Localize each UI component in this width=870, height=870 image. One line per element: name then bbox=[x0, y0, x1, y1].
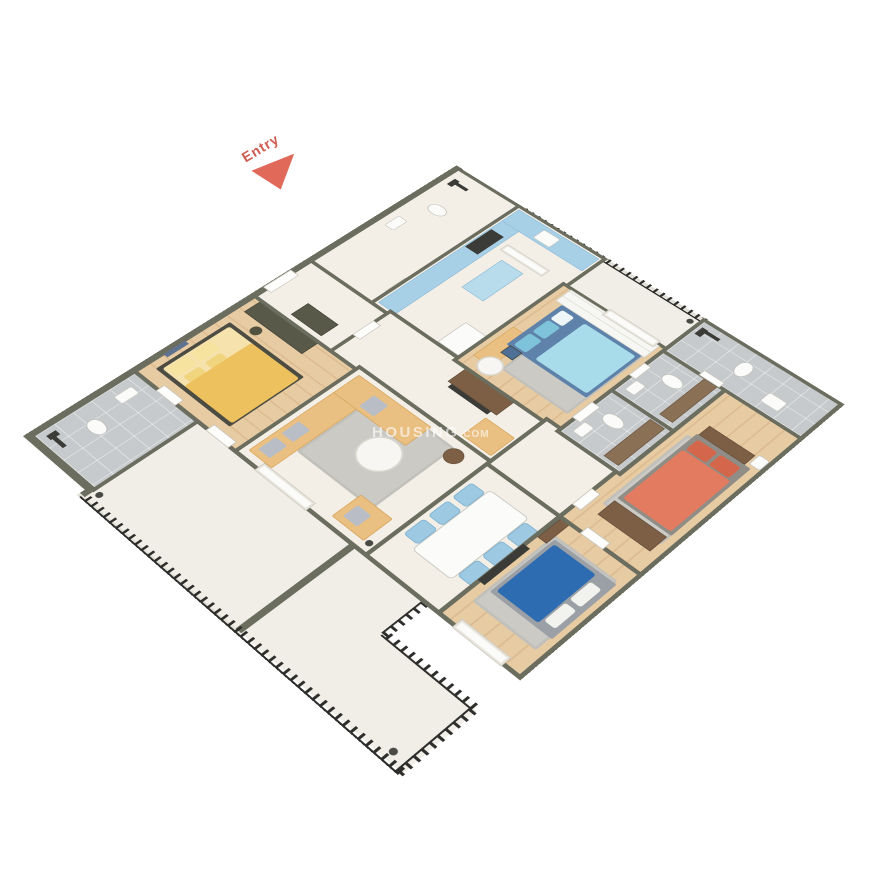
floorplan-3d-scene bbox=[23, 171, 838, 774]
watermark-suffix: .COM bbox=[460, 429, 490, 440]
stool bbox=[247, 325, 265, 337]
sink bbox=[759, 392, 788, 412]
sink bbox=[572, 421, 595, 438]
toilet bbox=[598, 411, 628, 432]
shower-pole bbox=[51, 436, 67, 448]
shower-pole bbox=[703, 330, 720, 341]
toilet bbox=[424, 202, 450, 219]
toilet bbox=[729, 360, 757, 380]
floorplan-canvas: Entry HOUSING.COM bbox=[0, 0, 870, 870]
toilet bbox=[658, 372, 688, 393]
shower-pole bbox=[454, 182, 469, 191]
sink bbox=[624, 380, 646, 396]
kitchen-island bbox=[461, 260, 523, 302]
sink bbox=[113, 386, 140, 404]
floor-lamp bbox=[363, 539, 375, 548]
watermark-name: HOUSING bbox=[372, 424, 460, 441]
sink bbox=[384, 216, 408, 231]
watermark: HOUSING.COM bbox=[372, 424, 490, 441]
toilet bbox=[82, 416, 111, 438]
